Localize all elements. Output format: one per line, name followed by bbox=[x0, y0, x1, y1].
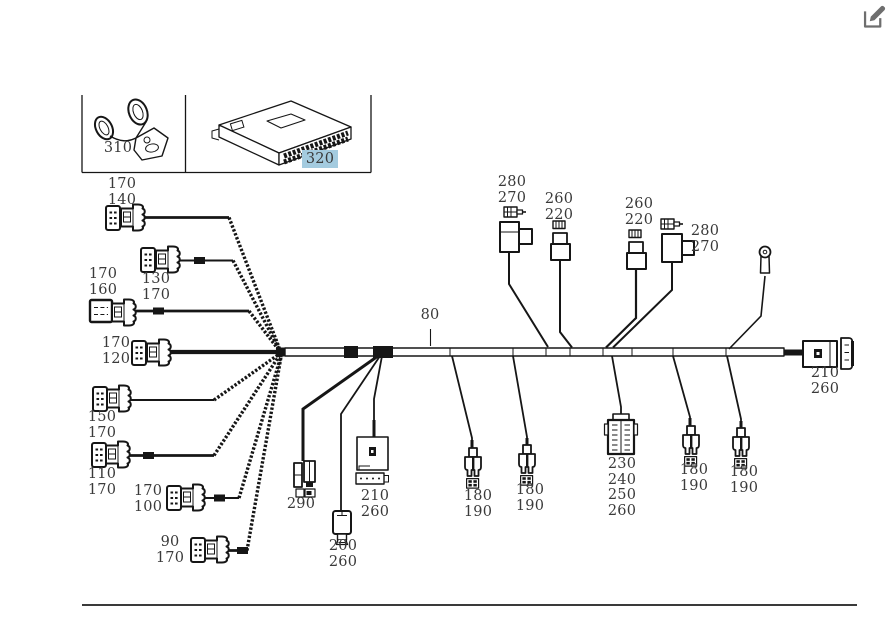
bottom-separator bbox=[82, 604, 857, 606]
callout-170-140[interactable]: 170 140 bbox=[104, 177, 140, 208]
callout-170-100[interactable]: 170 100 bbox=[130, 484, 166, 515]
callout-260-220-right[interactable]: 260 220 bbox=[620, 197, 658, 228]
connector-260-220-right bbox=[627, 230, 646, 269]
connector-230-240-250-260 bbox=[605, 414, 638, 454]
connector-180-190-a bbox=[465, 448, 481, 488]
callout-180-190-b[interactable]: 180 190 bbox=[511, 483, 549, 514]
connector-150-170 bbox=[93, 386, 131, 412]
connector-260-220-left bbox=[551, 221, 570, 260]
connector-170-100 bbox=[167, 485, 205, 511]
connector-170-120 bbox=[132, 340, 171, 366]
connector-290 bbox=[294, 461, 315, 497]
callout-130-170[interactable]: 130 170 bbox=[138, 272, 174, 303]
connector-180-190-b bbox=[519, 445, 535, 485]
part-label-320-highlighted[interactable]: 320 bbox=[302, 150, 338, 168]
screenshot-root: 310 320 170 140 130 170 170 160 170 120 … bbox=[0, 0, 895, 632]
callout-150-170[interactable]: 150 170 bbox=[84, 410, 120, 441]
callout-200-260[interactable]: 200 260 bbox=[324, 539, 362, 570]
ring-terminal bbox=[760, 247, 771, 274]
harness-trunk bbox=[285, 329, 803, 358]
connector-180-190-d bbox=[733, 428, 749, 468]
connector-170-160 bbox=[90, 300, 136, 326]
callout-180-190-a[interactable]: 180 190 bbox=[459, 489, 497, 520]
callout-180-190-d[interactable]: 180 190 bbox=[725, 465, 763, 496]
callout-260-220-left[interactable]: 260 220 bbox=[540, 192, 578, 223]
callout-280-270-left[interactable]: 280 270 bbox=[493, 175, 531, 206]
callout-110-170[interactable]: 110 170 bbox=[84, 467, 120, 498]
part-label-310[interactable]: 310 bbox=[98, 141, 138, 157]
callout-170-120[interactable]: 170 120 bbox=[98, 336, 134, 367]
relay-210-260 bbox=[356, 437, 389, 484]
connector-90-170 bbox=[191, 537, 229, 563]
connector-280-270-left bbox=[500, 207, 532, 252]
callout-210-260-right[interactable]: 210 260 bbox=[806, 366, 844, 397]
callout-210-260-mid[interactable]: 210 260 bbox=[356, 489, 394, 520]
callout-90-170[interactable]: 90 170 bbox=[152, 535, 188, 566]
callout-280-270-right[interactable]: 280 270 bbox=[686, 224, 724, 255]
callout-290[interactable]: 290 bbox=[282, 497, 320, 513]
connector-170-140 bbox=[106, 205, 145, 231]
callout-170-160[interactable]: 170 160 bbox=[85, 267, 121, 298]
wiring-harness-diagram bbox=[0, 0, 895, 632]
connector-110-170 bbox=[92, 442, 130, 468]
trunk-label-80[interactable]: 80 bbox=[415, 308, 445, 324]
callout-180-190-c[interactable]: 180 190 bbox=[675, 463, 713, 494]
connector-130-170 bbox=[141, 247, 180, 273]
connector-180-190-c bbox=[683, 426, 699, 466]
callout-230-240-250-260[interactable]: 230 240 250 260 bbox=[603, 457, 641, 519]
